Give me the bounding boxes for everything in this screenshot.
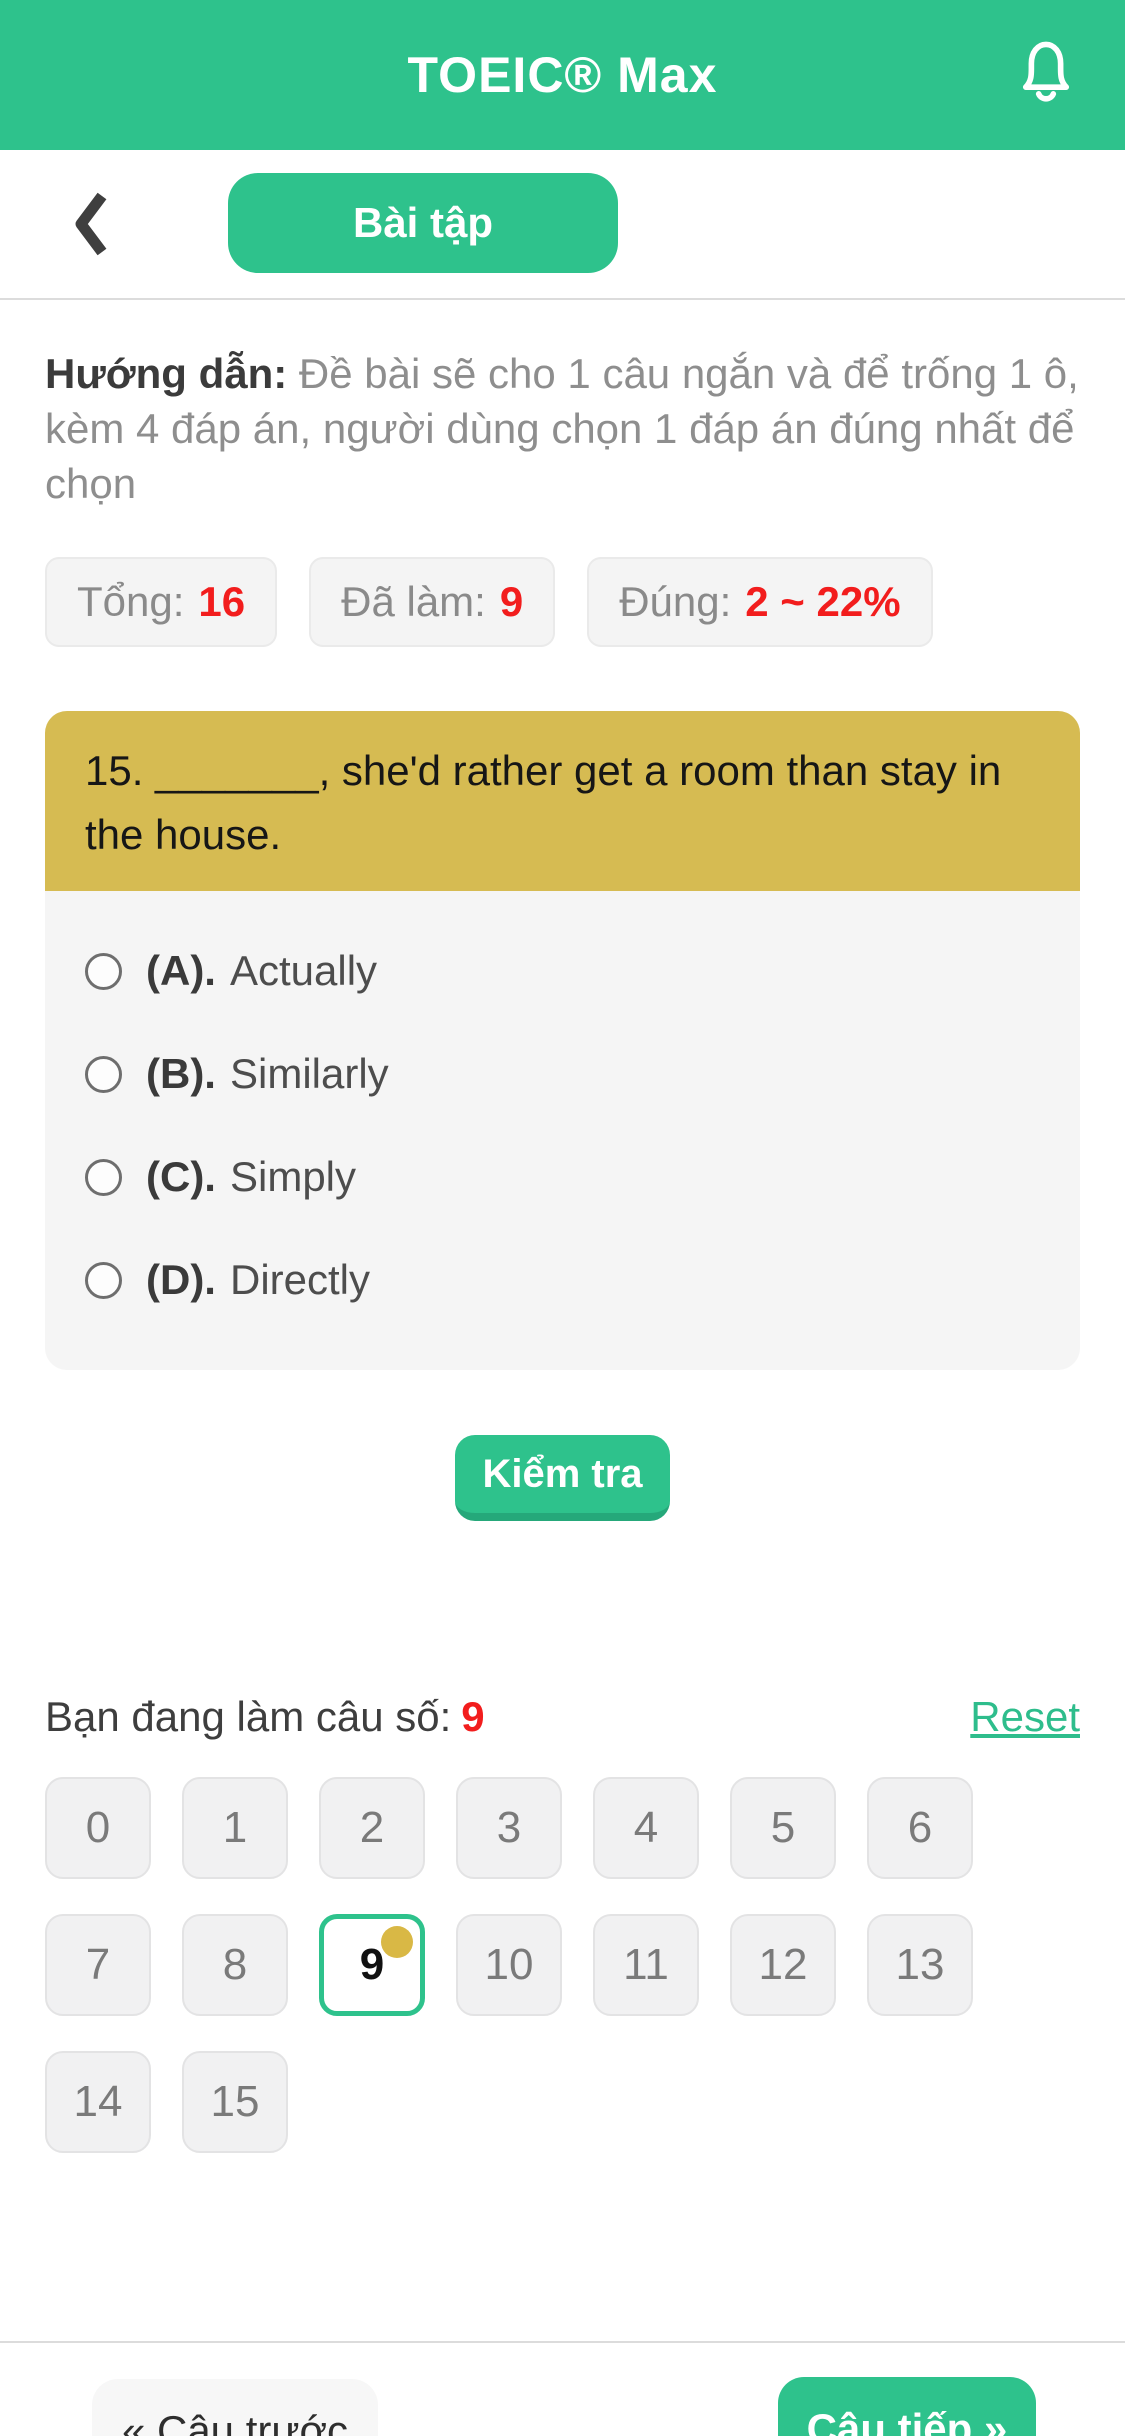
- answer-options: (A). Actually (B). Similarly (C). Simply…: [45, 891, 1080, 1370]
- footer-nav: « Câu trước Câu tiếp »: [0, 2341, 1125, 2436]
- check-button-row: Kiểm tra: [45, 1435, 1080, 1521]
- question-cell-2[interactable]: 2: [319, 1777, 425, 1879]
- radio-icon[interactable]: [85, 1262, 122, 1299]
- radio-icon[interactable]: [85, 953, 122, 990]
- current-question-dot-icon: [381, 1926, 413, 1958]
- question-cell-10[interactable]: 10: [456, 1914, 562, 2016]
- option-d[interactable]: (D). Directly: [85, 1256, 1040, 1304]
- question-prompt: 15. _______, she'd rather get a room tha…: [45, 711, 1080, 891]
- check-answer-button[interactable]: Kiểm tra: [455, 1435, 670, 1521]
- next-question-button[interactable]: Câu tiếp »: [778, 2377, 1036, 2436]
- previous-question-button[interactable]: « Câu trước: [92, 2379, 378, 2436]
- toeic-max-app: TOEIC® Max Bài tập Hướng dẫn: Đề bài sẽ …: [0, 0, 1125, 2436]
- instructions-text: Hướng dẫn: Đề bài sẽ cho 1 câu ngắn và đ…: [45, 346, 1080, 511]
- instructions-label: Hướng dẫn:: [45, 350, 287, 397]
- notification-bell-icon[interactable]: [1019, 38, 1073, 113]
- toolbar: Bài tập: [0, 150, 1125, 300]
- question-number-grid: 0 1 2 3 4 5 6 7 8 9 10 11 12 13 14 15: [45, 1777, 1080, 2153]
- question-cell-0[interactable]: 0: [45, 1777, 151, 1879]
- main-content: Hướng dẫn: Đề bài sẽ cho 1 câu ngắn và đ…: [0, 346, 1125, 2153]
- app-title: TOEIC® Max: [408, 46, 718, 104]
- option-b[interactable]: (B). Similarly: [85, 1050, 1040, 1098]
- option-a[interactable]: (A). Actually: [85, 947, 1040, 995]
- stat-chip-correct: Đúng: 2 ~ 22%: [587, 557, 932, 647]
- current-question-label: Bạn đang làm câu số:9: [45, 1693, 485, 1741]
- app-header: TOEIC® Max: [0, 0, 1125, 150]
- question-cell-3[interactable]: 3: [456, 1777, 562, 1879]
- question-cell-5[interactable]: 5: [730, 1777, 836, 1879]
- reset-link[interactable]: Reset: [970, 1693, 1080, 1741]
- radio-icon[interactable]: [85, 1056, 122, 1093]
- current-question-number: 9: [461, 1693, 484, 1740]
- stat-chip-total: Tổng: 16: [45, 557, 277, 647]
- question-cell-9-active[interactable]: 9: [319, 1914, 425, 2016]
- question-cell-15[interactable]: 15: [182, 2051, 288, 2153]
- question-cell-13[interactable]: 13: [867, 1914, 973, 2016]
- question-card: 15. _______, she'd rather get a room tha…: [45, 711, 1080, 1370]
- question-cell-7[interactable]: 7: [45, 1914, 151, 2016]
- question-cell-4[interactable]: 4: [593, 1777, 699, 1879]
- back-button[interactable]: [72, 191, 110, 257]
- question-cell-1[interactable]: 1: [182, 1777, 288, 1879]
- stats-row: Tổng: 16 Đã làm: 9 Đúng: 2 ~ 22%: [45, 557, 1080, 647]
- question-cell-12[interactable]: 12: [730, 1914, 836, 2016]
- progress-row: Bạn đang làm câu số:9 Reset: [45, 1693, 1080, 1741]
- exercise-tab-button[interactable]: Bài tập: [228, 173, 618, 273]
- stat-chip-done: Đã làm: 9: [309, 557, 555, 647]
- question-cell-6[interactable]: 6: [867, 1777, 973, 1879]
- question-cell-14[interactable]: 14: [45, 2051, 151, 2153]
- radio-icon[interactable]: [85, 1159, 122, 1196]
- option-c[interactable]: (C). Simply: [85, 1153, 1040, 1201]
- question-cell-8[interactable]: 8: [182, 1914, 288, 2016]
- question-cell-11[interactable]: 11: [593, 1914, 699, 2016]
